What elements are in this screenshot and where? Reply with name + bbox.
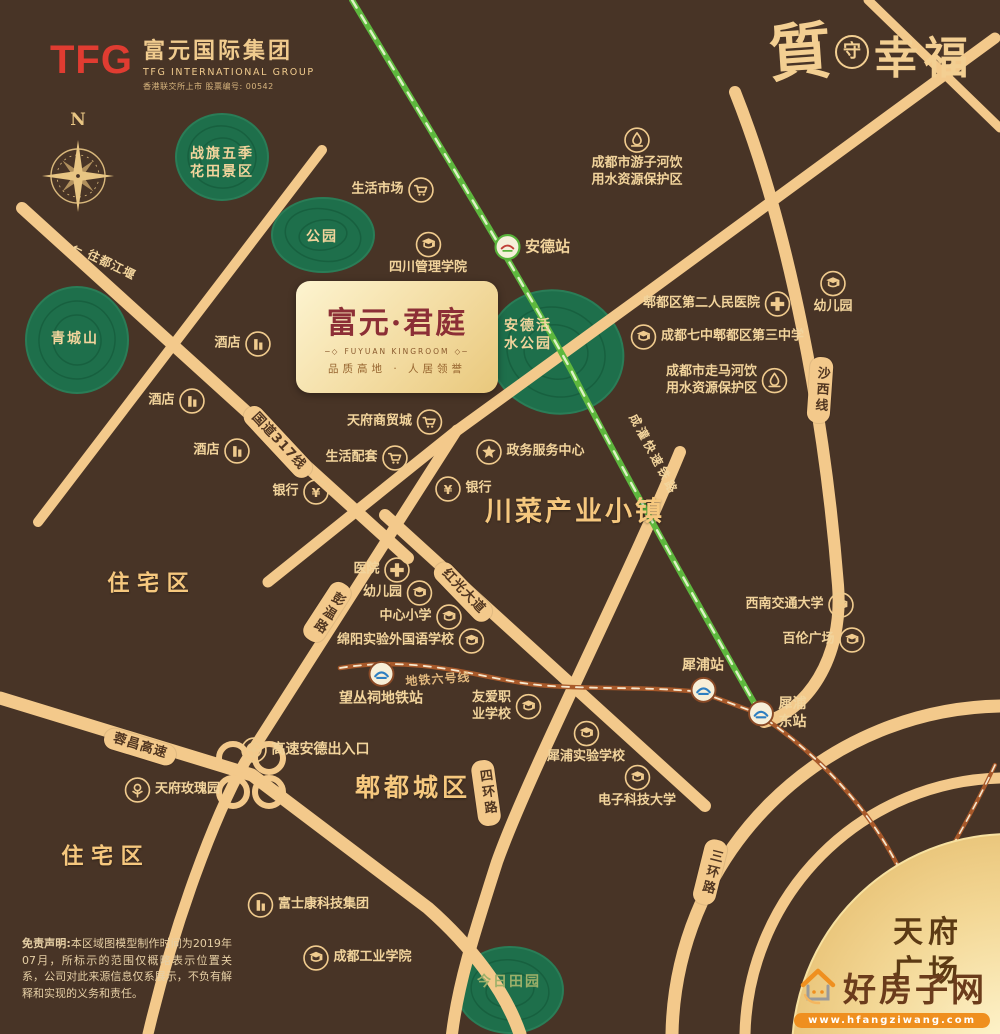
poi-xipu-station: 犀浦站 <box>682 656 724 703</box>
listing-info: 香港联交所上市 股票编号: 00542 <box>143 81 315 92</box>
poi-sichuan-mgmt-college: 四川管理学院 <box>389 231 467 277</box>
zone-residential-south: 住 宅 区 <box>61 844 142 873</box>
building-icon <box>179 388 206 415</box>
tfg-logo-mark: TFG <box>50 40 133 80</box>
poi-bank-east: ¥银行 <box>434 476 491 503</box>
poi-life-market: 生活市场 <box>351 177 434 204</box>
bank-icon: ¥ <box>303 479 330 506</box>
slogan-badge-shou: 守 <box>835 35 869 69</box>
school-icon <box>406 580 433 607</box>
watermark: 好房子网 www.hfangziwang.com <box>794 963 990 1028</box>
road-label-shaxi-line-text: 沙西线 <box>810 365 830 414</box>
poi-youzi-river-reserve: 成都市游子河饮 用水资源保护区 <box>591 127 682 190</box>
project-name: 富元·君庭 <box>327 298 467 342</box>
tfg-logo-text: 富元国际集团 TFG INTERNATIONAL GROUP 香港联交所上市 股… <box>143 40 315 92</box>
school-icon <box>414 231 441 258</box>
poi-zouma-river-reserve-text: 成都市走马河饮 用水资源保护区 <box>666 364 757 398</box>
poi-foxconn-technology-group: 富士康科技集团 <box>247 892 369 919</box>
poi-youai-vocational-school-text: 友爱职 业学校 <box>472 690 511 724</box>
school-icon <box>458 628 485 655</box>
poi-southwest-jiaotong-university: 西南交通大学 <box>745 592 854 619</box>
poi-bailun-plaza-text: 百伦广场 <box>782 632 834 649</box>
poi-government-service-center: 政务服务中心 <box>475 439 584 466</box>
disclaimer: 免责声明:本区域图模型制作时间为2019年07月，所标示的范围仅概略表示位置关系… <box>22 936 232 1002</box>
poi-pidu-no2-hospital-text: 郫都区第二人民医院 <box>643 296 760 313</box>
green-label-today-countryside: 今日田园 <box>477 973 541 991</box>
school-icon <box>630 324 657 351</box>
watermark-row: 好房子网 <box>797 963 987 1011</box>
poi-hospital-west-text: 医院 <box>353 562 379 579</box>
poi-hotel-1: 酒店 <box>214 331 271 358</box>
road-label-shaxi-line: 沙西线 <box>806 356 833 423</box>
poi-tianfu-trade-city: 天府商贸城 <box>347 409 443 436</box>
poi-life-amenities: 生活配套 <box>325 445 408 472</box>
poi-central-primary-school-text: 中心小学 <box>379 609 431 626</box>
zone-sichuan-cuisine-town-text: 川菜产业小镇 <box>485 494 665 529</box>
poi-uestc: 电子科技大学 <box>598 764 676 810</box>
poi-xipu-east-station-text: 犀浦 东站 <box>779 695 807 731</box>
poi-tianfu-trade-city-text: 天府商贸城 <box>347 414 412 431</box>
school-icon <box>436 604 463 631</box>
school-icon <box>839 627 866 654</box>
poi-southwest-jiaotong-university-text: 西南交通大学 <box>745 597 823 614</box>
poi-wangcongci-metro-station: 望丛祠地铁站 <box>339 660 423 707</box>
poi-tianfu-rose-garden: 天府玫瑰园 <box>124 777 220 804</box>
poi-mianyang-foreign-language-school-text: 绵阳实验外国语学校 <box>337 633 454 650</box>
poi-life-market-text: 生活市场 <box>351 182 403 199</box>
green-label-park-text: 公园 <box>306 228 338 246</box>
project-name-en: ─◇ FUYUAN KINGROOM ◇─ <box>325 347 469 356</box>
poi-tianfu-rose-garden-text: 天府玫瑰园 <box>155 782 220 799</box>
compass-north-label: N <box>38 110 118 130</box>
poi-youzi-river-reserve-text: 成都市游子河饮 用水资源保护区 <box>591 156 682 190</box>
metro-icon <box>368 660 395 687</box>
poi-mianyang-foreign-language-school: 绵阳实验外国语学校 <box>337 628 485 655</box>
poi-bank-west: 银行¥ <box>272 479 329 506</box>
green-label-today-countryside-text: 今日田园 <box>477 973 541 991</box>
metro-icon <box>748 700 775 727</box>
water-icon <box>761 368 788 395</box>
poi-bank-east-text: 银行 <box>465 481 491 498</box>
school-icon <box>515 694 542 721</box>
poi-central-primary-school: 中心小学 <box>379 604 462 631</box>
poi-expressway-ande-exit: 高速安德出入口 <box>241 737 370 764</box>
poi-expressway-ande-exit-text: 高速安德出入口 <box>272 741 370 759</box>
green-label-zhanqi-flower-field: 战旗五季 花田景区 <box>190 145 254 181</box>
poi-ande-station-text: 安德站 <box>525 237 570 257</box>
poi-pidu-no2-hospital: 郫都区第二人民医院 <box>643 291 791 318</box>
poi-kindergarten-west-text: 幼儿园 <box>363 585 402 602</box>
compass-rose-icon <box>38 132 118 216</box>
school-icon <box>819 270 846 297</box>
compass: N <box>38 110 118 220</box>
school-icon <box>302 945 329 972</box>
school-icon <box>828 592 855 619</box>
cart-icon <box>416 409 443 436</box>
metro-icon <box>690 677 717 704</box>
poi-life-amenities-text: 生活配套 <box>325 450 377 467</box>
cart-icon <box>408 177 435 204</box>
company-name-cn: 富元国际集团 <box>143 40 315 64</box>
disclaimer-title: 免责声明: <box>22 937 71 950</box>
zone-sichuan-cuisine-town: 川菜产业小镇 <box>485 494 665 529</box>
poi-chengdu-no7-pidu-no3-school-text: 成都七中郫都区第三中学 <box>661 329 804 346</box>
poi-bank-west-text: 银行 <box>272 484 298 501</box>
poi-chengdu-technological-university: 成都工业学院 <box>302 945 411 972</box>
green-label-park: 公园 <box>306 228 338 246</box>
green-label-ande-water-park-text: 安德活 水公园 <box>504 317 552 353</box>
zone-residential-north-text: 住 宅 区 <box>107 571 188 600</box>
school-icon <box>572 720 599 747</box>
poi-hotel-3-text: 酒店 <box>193 443 219 460</box>
zone-residential-south-text: 住 宅 区 <box>61 844 142 873</box>
building-icon <box>247 892 274 919</box>
star-icon <box>475 439 502 466</box>
poi-sichuan-mgmt-college-text: 四川管理学院 <box>389 260 467 277</box>
brand-slogan: 質 守 幸福 <box>769 24 974 83</box>
poi-kindergarten-northeast: 幼儿园 <box>813 270 852 316</box>
bank-icon: ¥ <box>434 476 461 503</box>
poi-ande-station: 安德站 <box>494 234 570 261</box>
road-label-4th-ring-text: 四环路 <box>474 768 497 818</box>
zone-residential-north: 住 宅 区 <box>107 571 188 600</box>
poi-xipu-station-text: 犀浦站 <box>682 656 724 674</box>
tfg-logo: TFG 富元国际集团 TFG INTERNATIONAL GROUP 香港联交所… <box>50 40 315 92</box>
project-tagline: 品质高地 · 人居领誉 <box>328 361 466 376</box>
green-label-qingchengshan: 青城山 <box>51 330 99 348</box>
slogan-char-zhi: 質 <box>767 22 833 85</box>
poi-chengdu-no7-pidu-no3-school: 成都七中郫都区第三中学 <box>630 324 804 351</box>
poi-kindergarten-west: 幼儿园 <box>363 580 433 607</box>
poi-hotel-3: 酒店 <box>193 438 250 465</box>
watermark-url: www.hfangziwang.com <box>794 1013 990 1028</box>
ornament-right: ◇─ <box>455 347 469 356</box>
poi-hotel-2-text: 酒店 <box>148 393 174 410</box>
zone-pidu-city-text: 郫都城区 <box>355 772 471 805</box>
poi-uestc-text: 电子科技大学 <box>598 793 676 810</box>
svg-text:¥: ¥ <box>444 482 453 497</box>
ornament-left: ─◇ <box>325 347 339 356</box>
poi-chengdu-technological-university-text: 成都工业学院 <box>333 950 411 967</box>
poi-foxconn-technology-group-text: 富士康科技集团 <box>278 897 369 914</box>
poi-wangcongci-metro-station-text: 望丛祠地铁站 <box>339 689 423 707</box>
poi-bailun-plaza: 百伦广场 <box>782 627 865 654</box>
house-icon <box>797 965 839 1009</box>
cart-icon <box>382 445 409 472</box>
poi-zouma-river-reserve: 成都市走马河饮 用水资源保护区 <box>666 364 788 398</box>
poi-youai-vocational-school: 友爱职 业学校 <box>472 690 542 724</box>
project-logo-card: 富元·君庭 ─◇ FUYUAN KINGROOM ◇─ 品质高地 · 人居领誉 <box>296 281 498 393</box>
map-canvas: TFG 富元国际集团 TFG INTERNATIONAL GROUP 香港联交所… <box>0 0 1000 1034</box>
poi-hotel-1-text: 酒店 <box>214 336 240 353</box>
building-icon <box>224 438 251 465</box>
poi-government-service-center-text: 政务服务中心 <box>506 444 584 461</box>
green-label-zhanqi-flower-field-text: 战旗五季 花田景区 <box>190 145 254 181</box>
hospital-icon <box>764 291 791 318</box>
company-name-en: TFG INTERNATIONAL GROUP <box>143 67 315 78</box>
green-label-ande-water-park: 安德活 水公园 <box>504 317 552 353</box>
poi-xipu-east-station: 犀浦 东站 <box>748 695 807 731</box>
rose-icon <box>124 777 151 804</box>
interchange-icon <box>241 737 268 764</box>
school-icon <box>623 764 650 791</box>
green-label-qingchengshan-text: 青城山 <box>51 330 99 348</box>
poi-hotel-2: 酒店 <box>148 388 205 415</box>
project-name-en-text: FUYUAN KINGROOM <box>344 347 449 356</box>
svg-text:¥: ¥ <box>312 485 321 500</box>
zone-pidu-city: 郫都城区 <box>355 772 471 805</box>
building-icon <box>245 331 272 358</box>
slogan-xingfu: 幸福 <box>874 37 974 81</box>
poi-kindergarten-northeast-text: 幼儿园 <box>813 299 852 316</box>
water-icon <box>623 127 650 154</box>
watermark-site-name: 好房子网 <box>843 963 987 1011</box>
rail-icon <box>494 234 521 261</box>
poi-xipu-experimental-school: 犀浦实验学校 <box>547 720 625 766</box>
